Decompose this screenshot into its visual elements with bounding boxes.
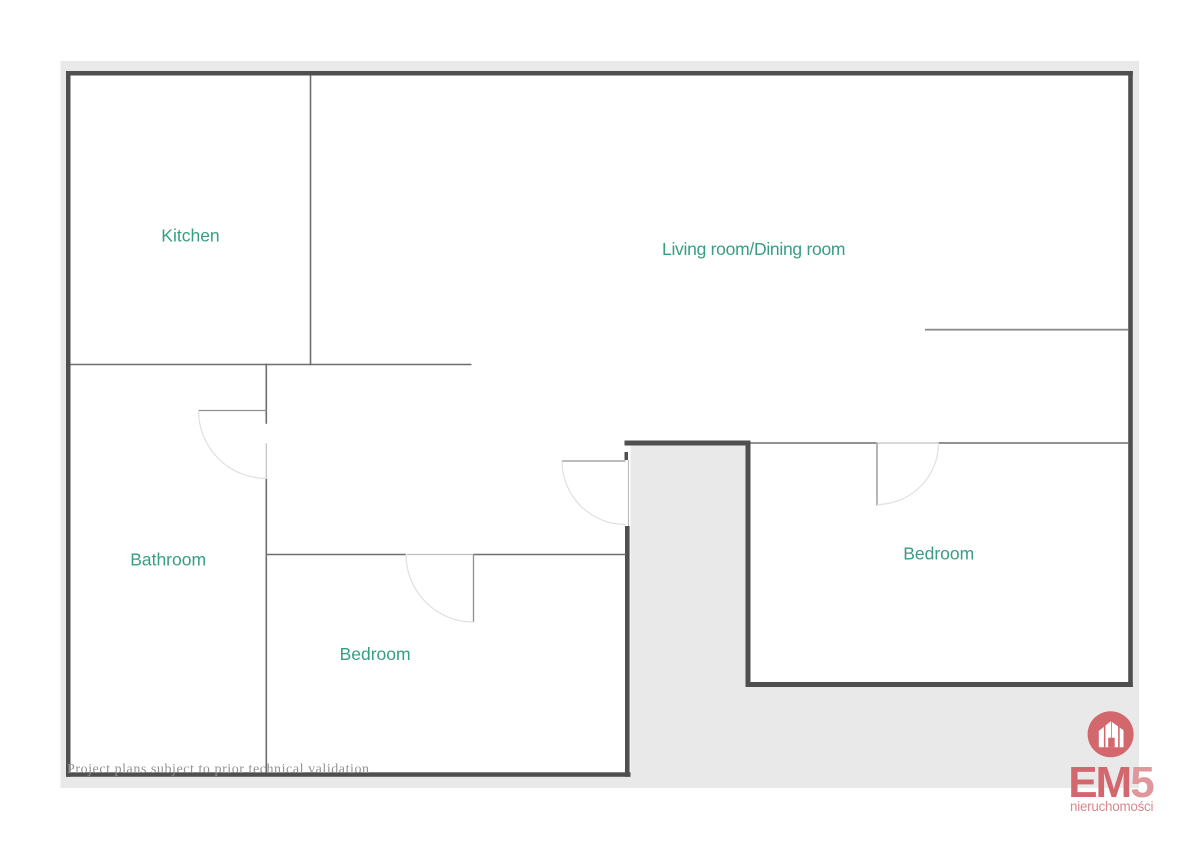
svg-text:Living room/Dining room: Living room/Dining room	[662, 239, 846, 259]
svg-text:Kitchen: Kitchen	[161, 225, 219, 245]
svg-text:Bathroom: Bathroom	[130, 550, 206, 570]
svg-text:nieruchomości: nieruchomości	[1070, 799, 1154, 814]
svg-text:Project plans subject to prior: Project plans subject to prior technical…	[67, 762, 369, 777]
svg-text:Bedroom: Bedroom	[903, 544, 974, 564]
svg-text:Bedroom: Bedroom	[340, 644, 411, 664]
